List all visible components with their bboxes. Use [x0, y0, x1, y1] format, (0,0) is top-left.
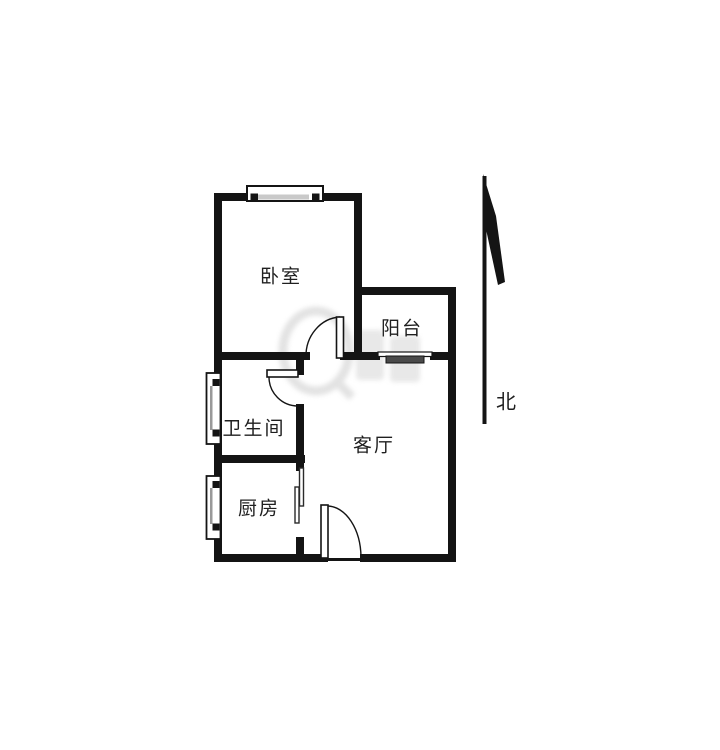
room-label-living-room: 客厅: [353, 431, 395, 458]
room-label-bedroom: 卧室: [260, 262, 302, 289]
watermark-q-tail: [337, 382, 352, 397]
room-label-kitchen: 厨房: [238, 494, 280, 521]
floor-plan-page: 卧室 阳台 卫生间 厨房 客厅 北: [0, 0, 720, 750]
north-label: 北: [496, 386, 516, 415]
wall-bedroom-bottom: [214, 352, 310, 360]
room-label-bathroom: 卫生间: [222, 414, 285, 441]
wall-balcony-bottom-left: [354, 352, 380, 360]
entrance-door-icon: [321, 505, 361, 558]
entrance-threshold: [328, 558, 360, 561]
bathroom-door-icon: [267, 370, 298, 406]
wall-bathroom-bottom: [214, 455, 305, 463]
wall-outer-right: [448, 287, 456, 562]
wall-bottom-left: [214, 554, 328, 562]
wall-balcony-top: [354, 287, 456, 295]
bedroom-window-icon: [247, 186, 323, 201]
bathroom-window-icon: [207, 373, 221, 444]
bedroom-door-icon: [306, 317, 344, 358]
floor-plan-drawing: [0, 0, 720, 750]
kitchen-window-icon: [207, 476, 221, 539]
wall-bedroom-right: [354, 193, 362, 360]
wall-bathroom-right-lower: [296, 404, 304, 463]
windows: [207, 186, 324, 539]
kitchen-sliding-door-icon: [295, 468, 304, 523]
balcony-sliding-door-icon: [378, 352, 432, 363]
wall-bottom-right: [360, 554, 456, 562]
room-label-balcony: 阳台: [381, 314, 423, 341]
wall-balcony-bottom-right: [430, 352, 456, 360]
